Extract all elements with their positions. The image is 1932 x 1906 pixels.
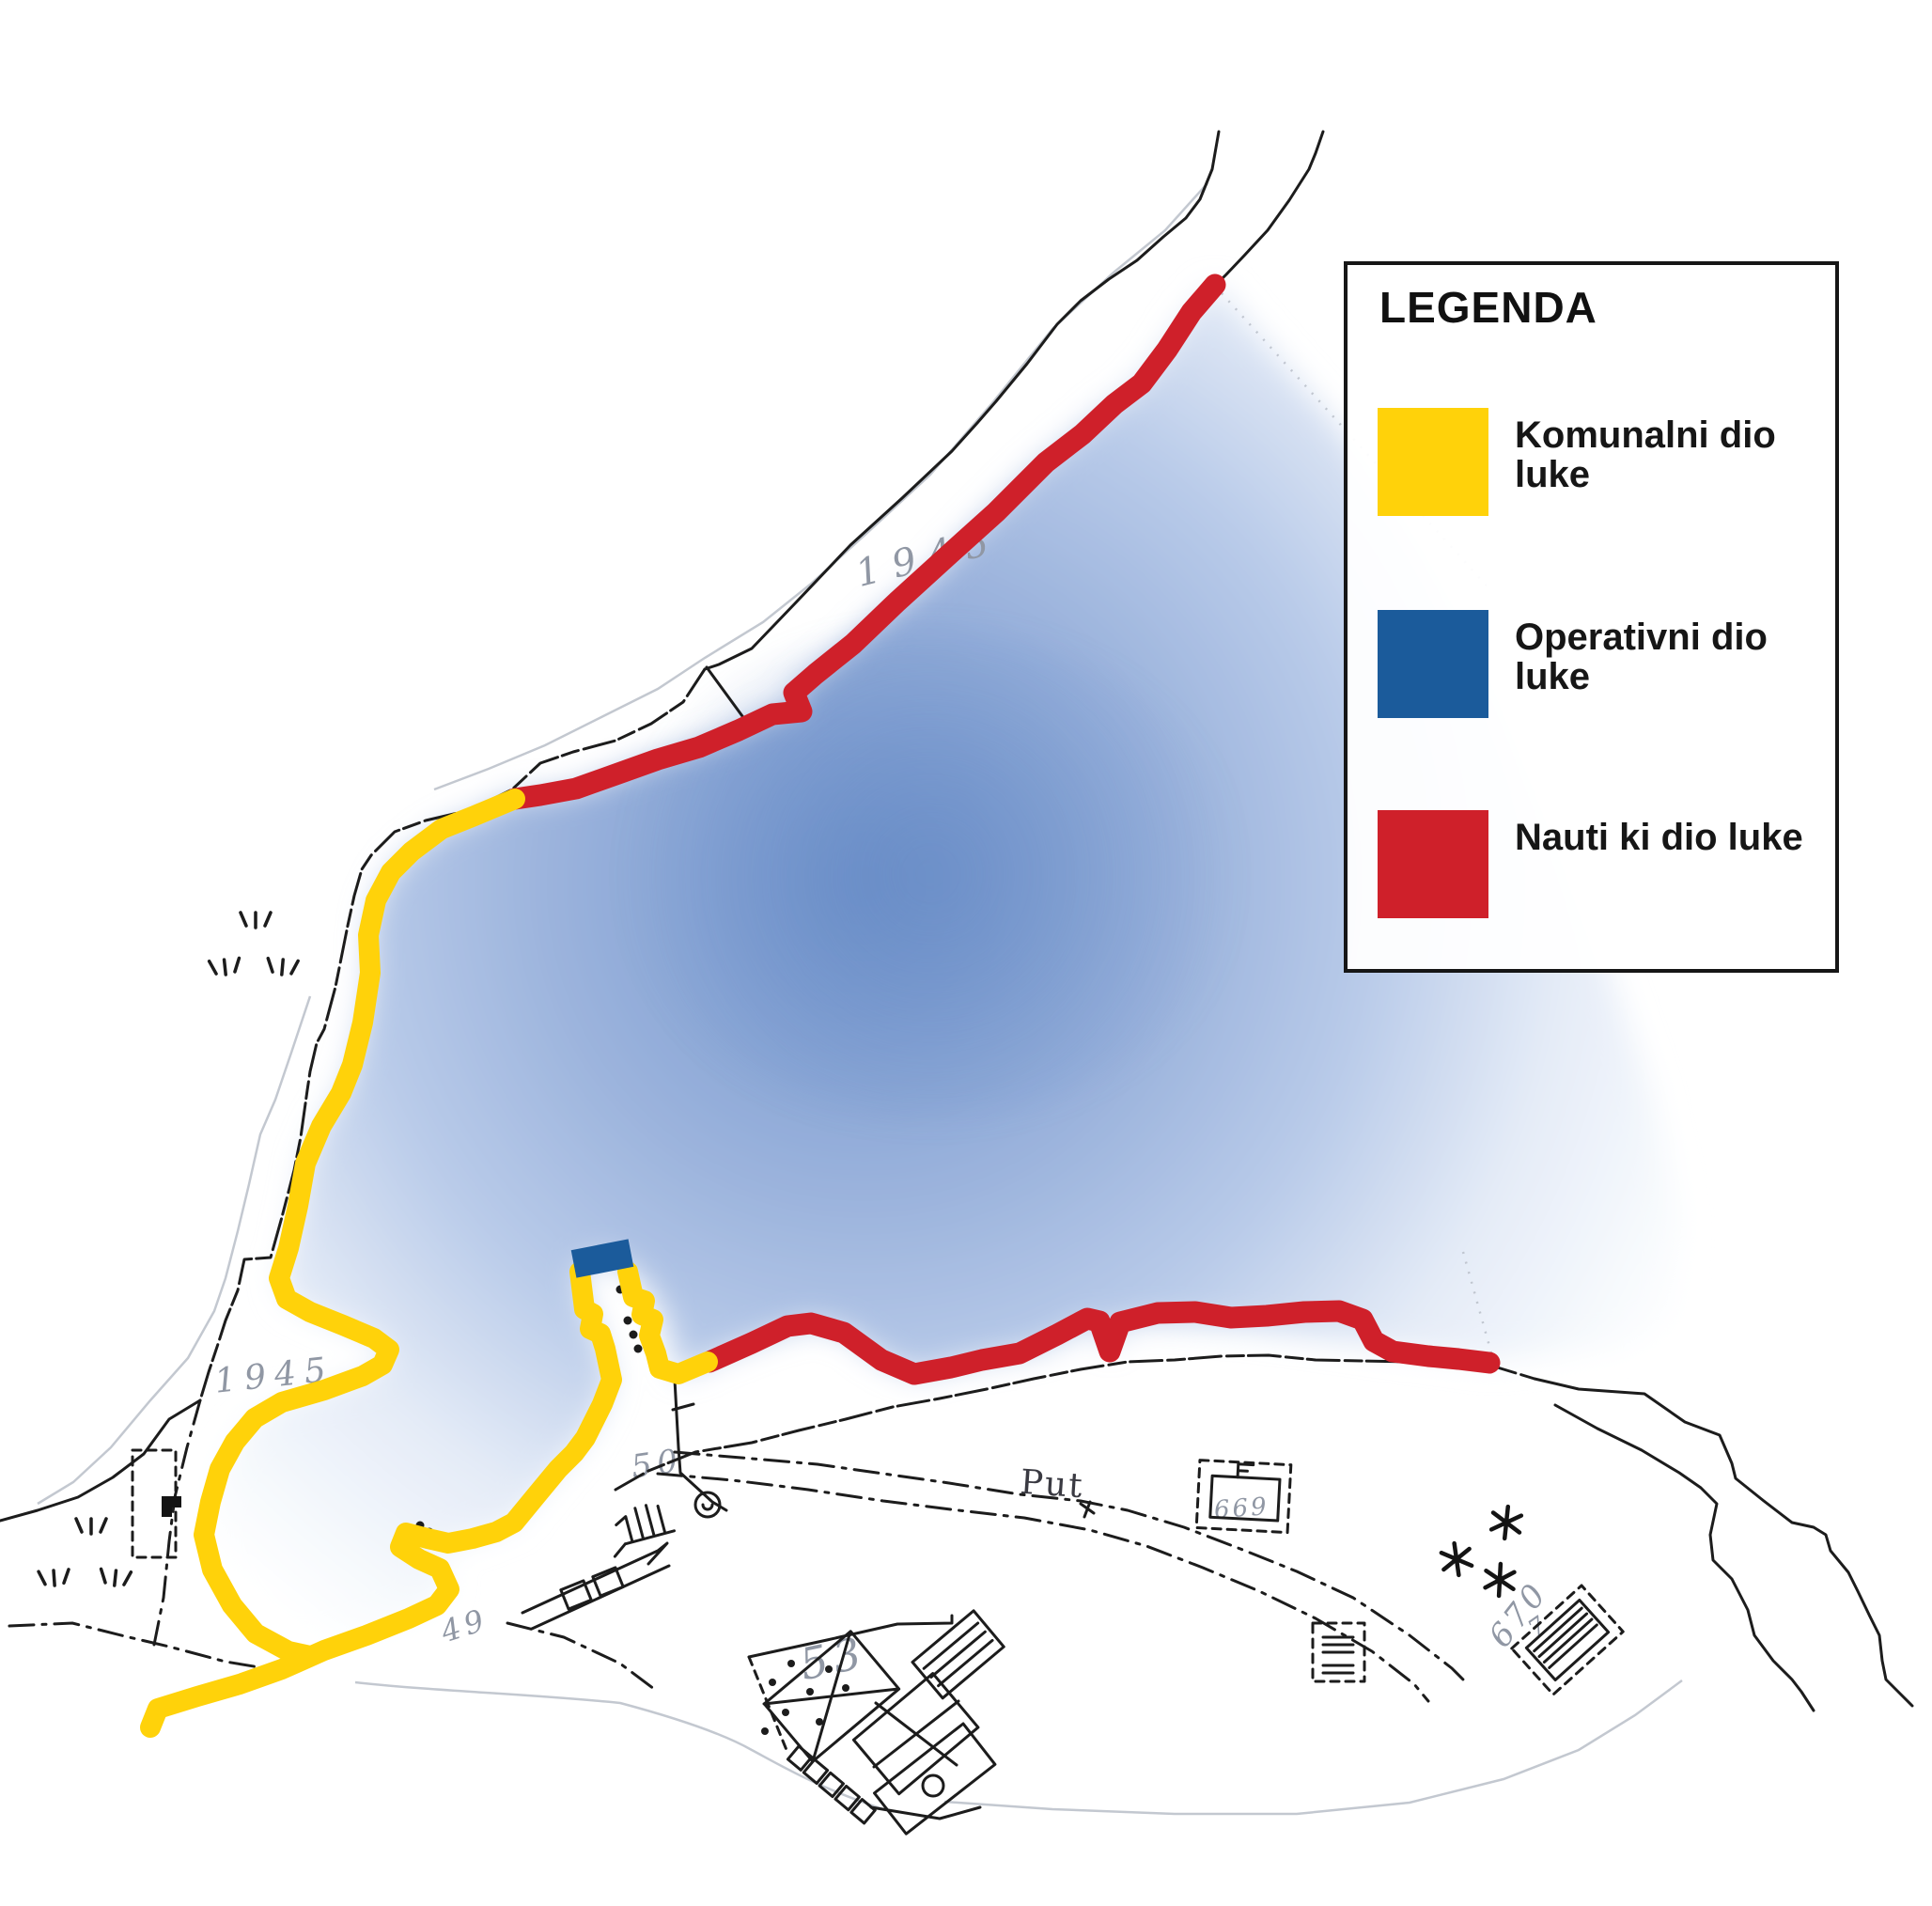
asterisk-icon <box>1441 1541 1472 1577</box>
asterisk-icon <box>1490 1506 1521 1540</box>
nauticki-line-south <box>709 1311 1489 1374</box>
shed-2 <box>593 1568 623 1596</box>
sea-deep-lobe <box>620 630 1240 1118</box>
shore-arc-faint-southeast <box>944 1680 1682 1814</box>
harbor-plan-page: 1945 1945 50 49 53 669 670 7 Put <box>0 0 1932 1906</box>
building-53-arcade <box>787 1746 875 1823</box>
coastline-east-inner <box>1555 1405 1814 1711</box>
legend-swatch-komunalni <box>1378 408 1488 516</box>
shore-arc-faint-south <box>355 1682 883 1809</box>
circle-mark-1-inner <box>703 1505 712 1509</box>
legend-swatch-nauticki <box>1378 810 1488 918</box>
legend-label-operativni: Operativni dio luke <box>1515 617 1835 696</box>
coastline-north-right <box>1217 132 1323 284</box>
building-53-complex <box>749 1611 1004 1834</box>
road-bottom-left <box>507 1623 658 1692</box>
road-put-lower <box>658 1474 1428 1701</box>
circle-mark-2 <box>923 1775 943 1796</box>
legend-label-nauticki: Nauti ki dio luke <box>1515 818 1803 857</box>
legend-label-komunalni: Komunalni dio luke <box>1515 415 1835 494</box>
asterisk-marks <box>1441 1506 1522 1597</box>
label-parcel-53: 53 <box>796 1627 871 1690</box>
fence-structure <box>604 1500 677 1556</box>
label-parcel-50: 50 <box>629 1442 685 1486</box>
legend-title: LEGENDA <box>1379 286 1597 329</box>
legend-panel: LEGENDA Komunalni dio luke Operativni di… <box>1344 261 1839 973</box>
parcel-mark-bottomleft <box>162 1496 181 1517</box>
asterisk-icon <box>1485 1563 1515 1597</box>
label-road-put: Put <box>1019 1463 1085 1507</box>
boundary-branch-south <box>154 1400 200 1645</box>
boundary-below-pier <box>675 1380 726 1510</box>
legend-swatch-operativni <box>1378 610 1488 718</box>
building-hatched-box <box>1313 1623 1364 1681</box>
coastline-east-outer <box>1535 1379 1912 1706</box>
